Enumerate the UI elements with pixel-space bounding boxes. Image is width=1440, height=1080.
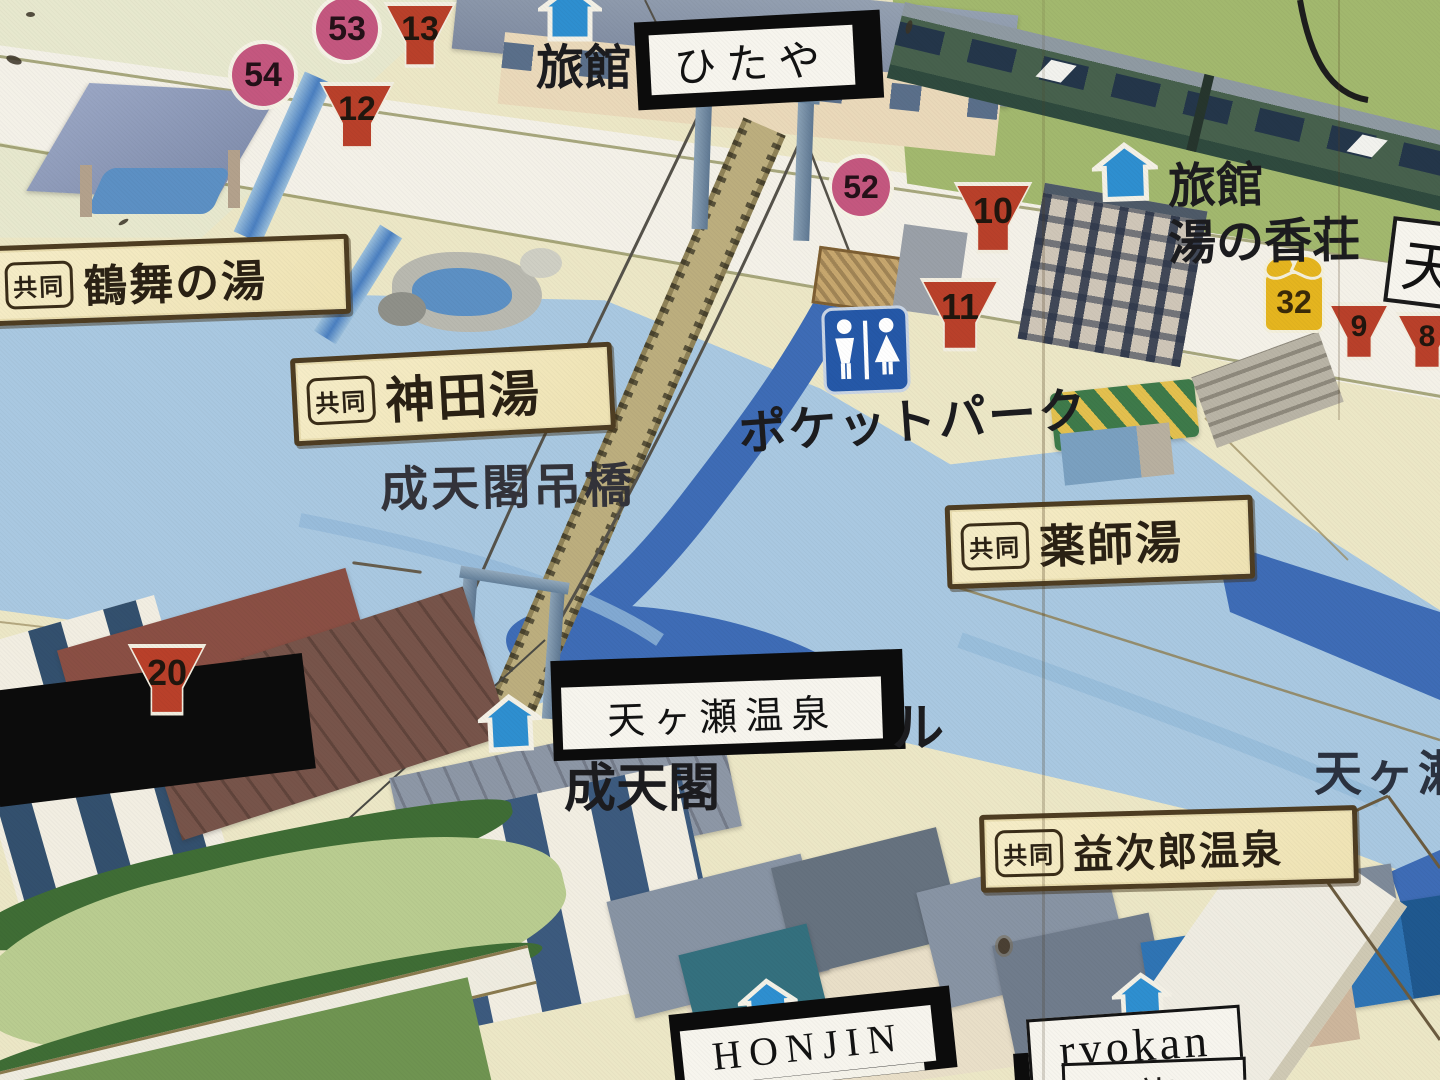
hitaya-category-text: 旅館 xyxy=(536,28,632,98)
plaque-name: 薬師湯 xyxy=(1038,506,1184,577)
plaque-kandayu: 共同 神田湯 xyxy=(290,342,616,447)
map-marker-53: 53 xyxy=(316,0,378,60)
marker-number: 10 xyxy=(973,190,1013,254)
marker-number: 9 xyxy=(1351,310,1368,360)
plaque-prefix: 共同 xyxy=(960,521,1030,570)
plaque-tsurumai-no-yu: 共同 鶴舞の湯 xyxy=(0,234,351,327)
plaque-masujiro-onsen: 共同 益次郎温泉 xyxy=(979,805,1359,893)
plaque-yakushiyu: 共同 薬師湯 xyxy=(945,495,1256,590)
covered-text-remnant: ル xyxy=(892,686,944,761)
bridge-name-text: 成天閣吊橋 xyxy=(379,446,635,520)
seitenkaku-text: 成天閣 xyxy=(564,746,720,821)
marker-number: 12 xyxy=(338,90,376,150)
marker-number: 32 xyxy=(1276,284,1312,321)
ramp-rail xyxy=(1388,796,1440,868)
bolt-on-sign xyxy=(998,938,1010,954)
plaque-name: 神田湯 xyxy=(383,353,543,433)
map-marker-52: 52 xyxy=(832,158,890,216)
plaque-prefix: 共同 xyxy=(306,375,376,425)
partial-text: 天龍 xyxy=(1095,1064,1177,1080)
marker-number: 20 xyxy=(147,652,187,716)
onsen-sign: 天ヶ瀬温泉 xyxy=(561,676,883,749)
edge-sign-partial: 天 xyxy=(1383,216,1440,314)
plaque-name: 鶴舞の湯 xyxy=(82,245,268,315)
yunokaso-text-line2: 湯の香荘 xyxy=(1167,200,1360,273)
marker-number: 11 xyxy=(941,286,979,352)
plaque-prefix: 共同 xyxy=(994,828,1063,877)
restroom-icon xyxy=(820,304,911,395)
house-icon xyxy=(1091,141,1159,203)
plaque-name: 益次郎温泉 xyxy=(1072,817,1283,880)
map-marker-54: 54 xyxy=(232,44,294,106)
river-name-text: 天ヶ瀬 xyxy=(1314,734,1440,804)
marker-number: 53 xyxy=(328,10,366,49)
marker-number: 8 xyxy=(1419,320,1436,370)
map-marker-32: 32 xyxy=(1266,274,1322,330)
map-stage: 53 54 52 13 12 10 11 9 8 20 32 共同 鶴舞の湯 共… xyxy=(0,0,1440,1080)
house-shape xyxy=(480,696,541,751)
dirt-speck xyxy=(26,12,35,17)
house-icon xyxy=(477,692,544,753)
marker-number: 52 xyxy=(843,169,879,206)
marker-number: 13 xyxy=(401,10,439,68)
marker-number: 54 xyxy=(244,56,282,95)
house-shape xyxy=(1094,144,1156,200)
hitaya-sign: ひたや xyxy=(649,25,856,96)
plaque-prefix: 共同 xyxy=(4,260,74,309)
